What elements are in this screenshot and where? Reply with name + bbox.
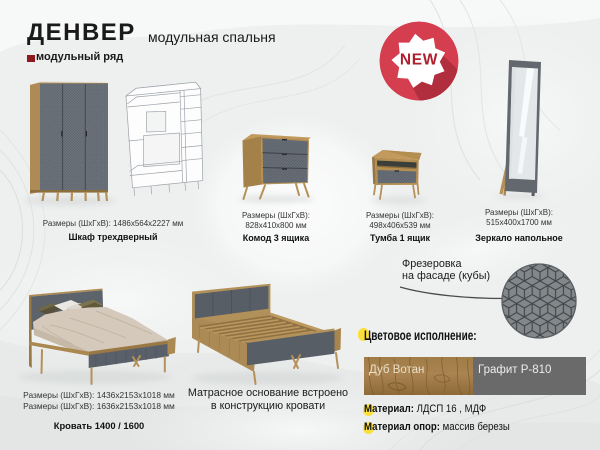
svg-text:Дуб Вотан: Дуб Вотан	[369, 364, 424, 376]
svg-text:NEW: NEW	[400, 52, 438, 69]
svg-text:Графит Р-810: Графит Р-810	[478, 364, 551, 376]
